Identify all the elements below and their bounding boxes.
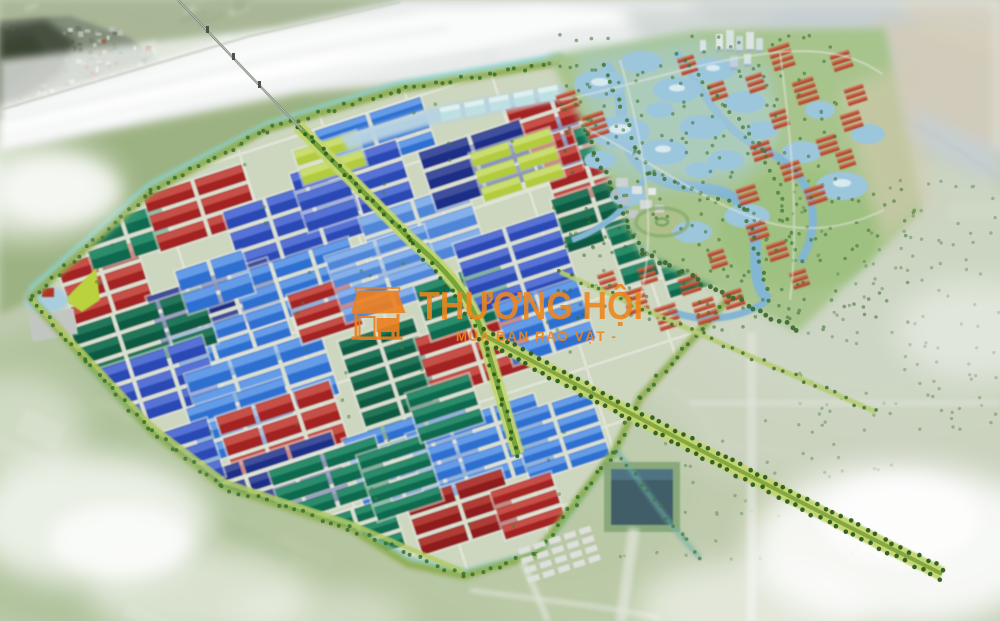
svg-text:- MUA BÁN RAO VẶT -: - MUA BÁN RAO VẶT - (445, 329, 618, 344)
svg-text:THƯƠNG HỘI: THƯƠNG HỘI (419, 283, 643, 328)
